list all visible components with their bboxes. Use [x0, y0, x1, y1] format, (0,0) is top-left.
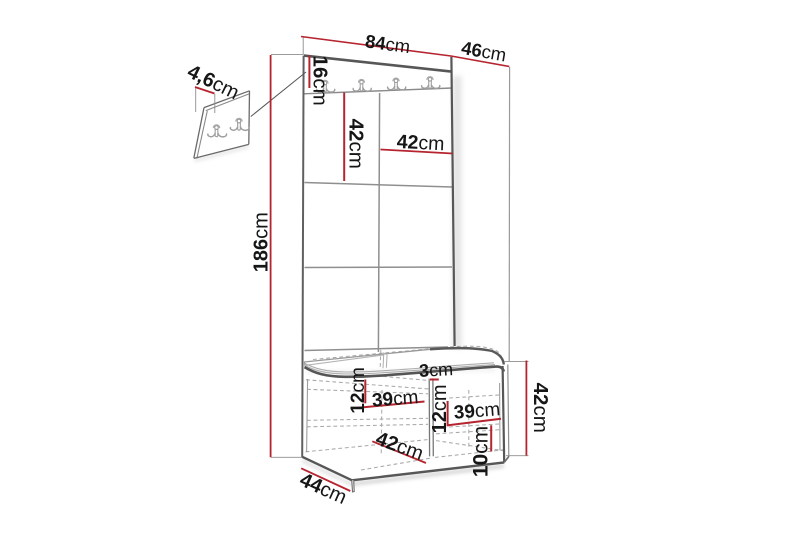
svg-text:16cm: 16cm — [309, 56, 332, 106]
svg-text:42cm: 42cm — [396, 131, 445, 155]
svg-text:42cm: 42cm — [345, 119, 368, 169]
svg-text:39cm: 39cm — [453, 399, 501, 424]
svg-text:10cm: 10cm — [469, 426, 492, 477]
svg-text:12cm: 12cm — [429, 384, 451, 433]
svg-text:186cm: 186cm — [251, 212, 273, 272]
svg-text:12cm: 12cm — [347, 367, 368, 413]
svg-text:3cm: 3cm — [419, 359, 454, 381]
svg-text:42cm: 42cm — [530, 383, 553, 433]
svg-text:39cm: 39cm — [371, 387, 419, 412]
